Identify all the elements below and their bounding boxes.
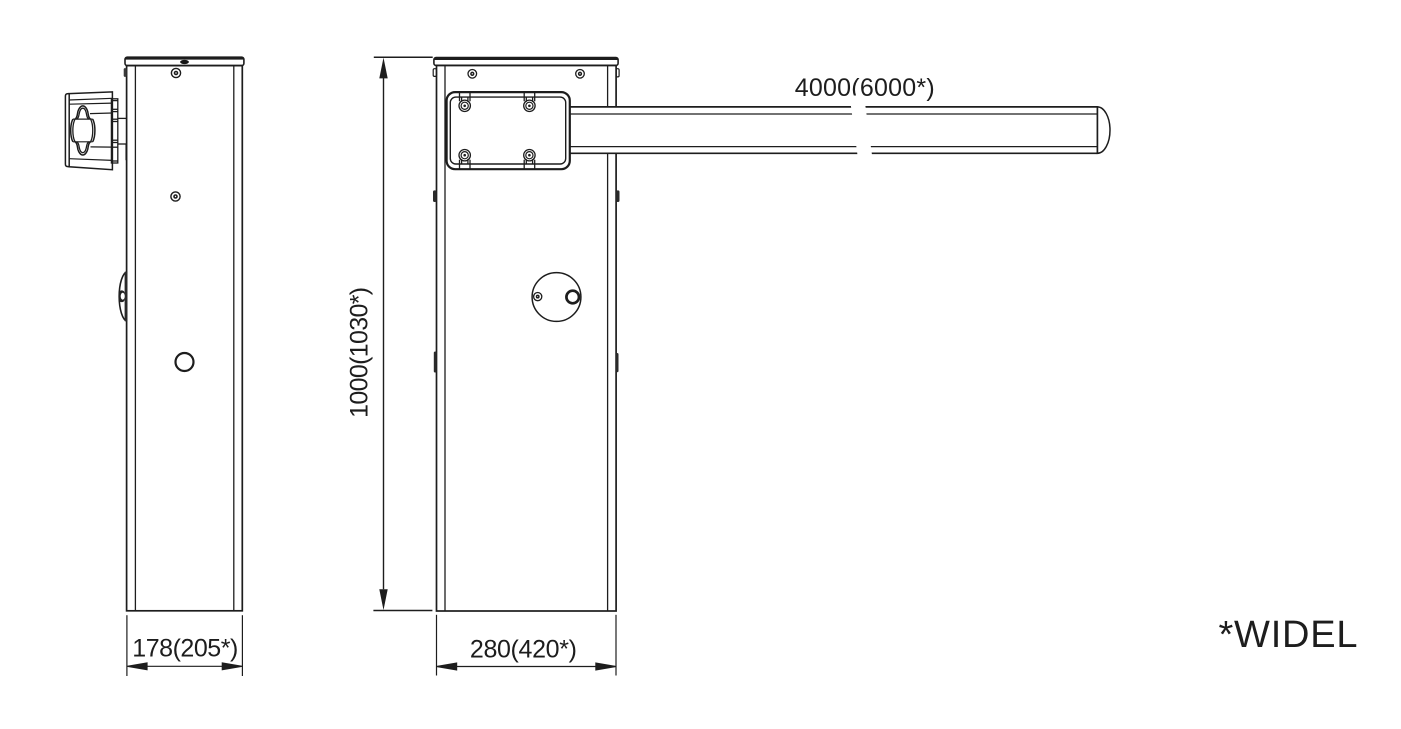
- svg-text:1000(1030*): 1000(1030*): [345, 287, 373, 418]
- svg-text:4000(6000*): 4000(6000*): [795, 74, 935, 102]
- svg-text:178(205*): 178(205*): [132, 634, 238, 662]
- svg-text:*WIDEL: *WIDEL: [1219, 614, 1358, 656]
- svg-text:280(420*): 280(420*): [470, 635, 577, 663]
